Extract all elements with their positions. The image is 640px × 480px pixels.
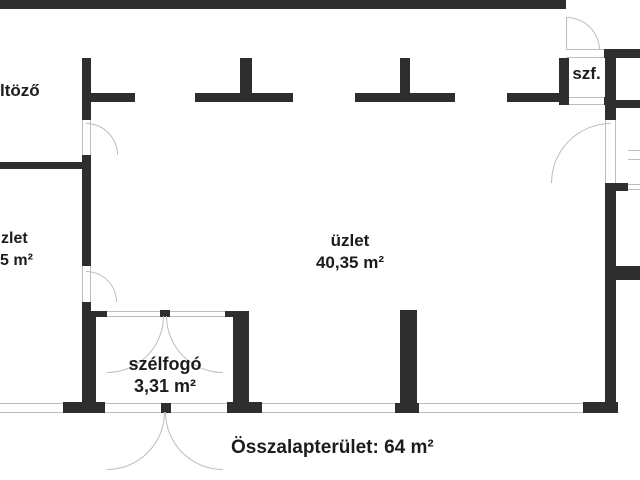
shopfront-window-far-left <box>0 403 63 413</box>
szf-left-wall <box>559 58 569 105</box>
right-wall-upper <box>605 49 616 120</box>
szf-bottom-door-opening <box>569 97 604 105</box>
neighbour-stub-3 <box>616 266 640 280</box>
left-partition-middle <box>82 155 91 266</box>
top-wall-left-segment <box>0 0 566 9</box>
glass-tick-right <box>225 311 233 317</box>
neighbour-fixture-line <box>628 150 640 160</box>
uzlet-room-area: 40,35 m² <box>290 252 410 273</box>
szelfogo-right-post <box>233 311 249 403</box>
uzlet-room-label: üzlet <box>290 230 410 251</box>
center-pier-base <box>395 403 419 413</box>
uzlet-left-room-label: zlet <box>1 229 28 249</box>
bay-arm-4 <box>507 93 559 102</box>
left-upper-door-arc <box>86 123 118 155</box>
center-pier <box>400 310 417 405</box>
neighbour-stub-1 <box>616 100 640 108</box>
shopfront-window-right <box>419 403 583 413</box>
entrance-door-right-arc <box>165 412 223 470</box>
glass-tick-left <box>95 311 107 317</box>
szelfogo-room-area: 3,31 m² <box>100 375 230 398</box>
szelfogo-bl-post <box>63 402 105 413</box>
entrance-door-left-arc <box>107 412 165 470</box>
right-door-swing-arc <box>551 123 611 183</box>
szelfogo-br-post <box>227 402 262 413</box>
szelfogo-room-label: szélfogó <box>100 353 230 376</box>
bottom-right-post <box>583 402 618 413</box>
neighbour-stub-2-sill <box>628 184 640 190</box>
bay-bar-2 <box>195 93 293 102</box>
shopfront-window-mid <box>262 403 395 413</box>
bay-bar-3 <box>355 93 455 102</box>
szf-exterior-door-arc <box>566 17 600 50</box>
szelfogo-left-post <box>82 311 96 403</box>
szf-room-label: szf. <box>569 63 604 84</box>
left-lower-door-arc <box>86 271 117 302</box>
left-partition-upper <box>82 58 91 120</box>
top-edge-wall-stub <box>57 0 71 9</box>
szf-top-door-opening <box>566 49 604 58</box>
oltozo-room-label: ltöző <box>0 80 40 101</box>
bay-arm-1 <box>91 93 135 102</box>
neighbour-stub-2 <box>616 183 628 191</box>
oltozo-bottom-wall <box>0 162 82 169</box>
right-wall-lower <box>605 183 616 410</box>
floor-plan: ltöző zlet 5 m² üzlet 40,35 m² szf. szél… <box>0 0 640 480</box>
uzlet-left-room-area: 5 m² <box>0 251 33 271</box>
total-area-label: Összalapterület: 64 m² <box>231 436 434 460</box>
